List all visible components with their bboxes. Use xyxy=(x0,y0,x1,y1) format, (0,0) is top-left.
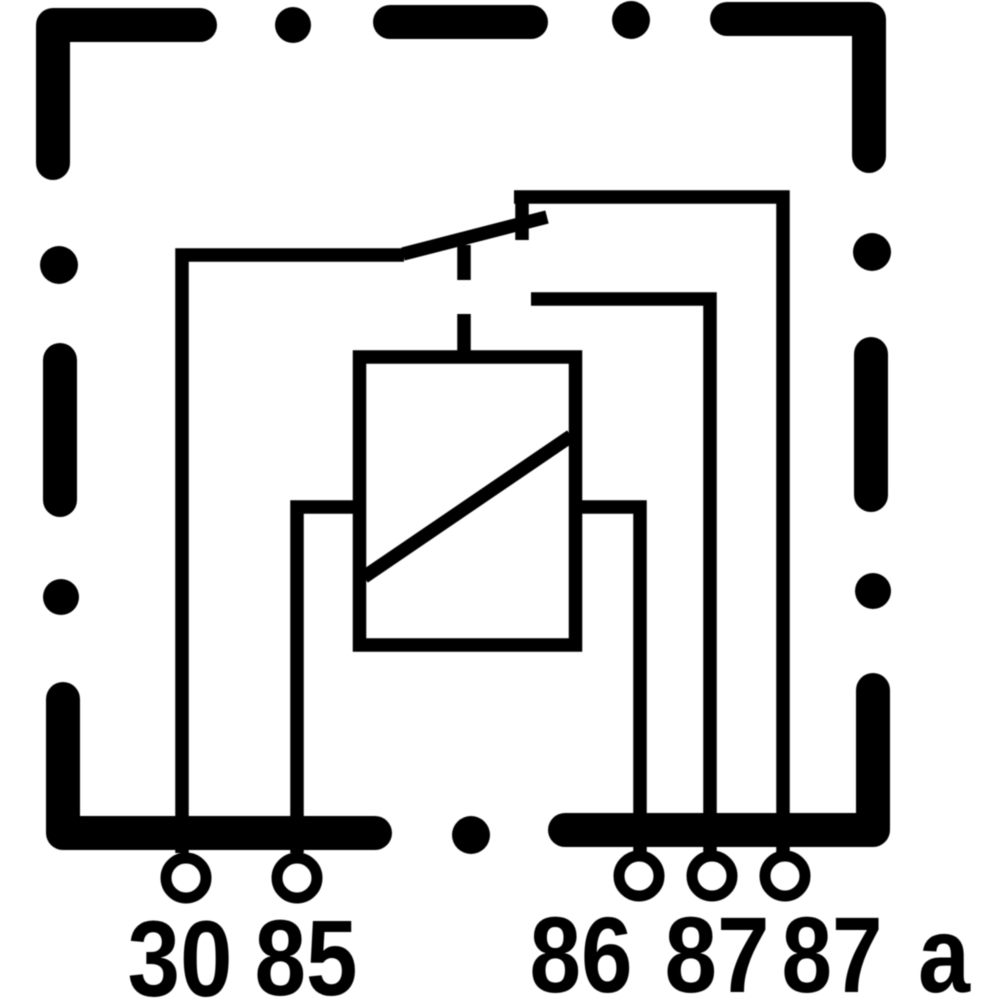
terminal-label-85: 85 xyxy=(255,897,358,1000)
circuit-wiring xyxy=(182,197,783,853)
housing-dot-top-1 xyxy=(275,7,311,43)
wire-terminal-87 xyxy=(531,299,710,853)
housing-dot-bottom xyxy=(452,816,490,854)
housing-corner-top-left xyxy=(53,25,200,163)
terminal-label-87a-number: 87 xyxy=(782,894,883,1000)
housing-dot-left-2 xyxy=(43,579,79,615)
terminal-circle-87 xyxy=(692,856,732,896)
terminal-label-87a-suffix: a xyxy=(918,894,971,1000)
wire-terminal-86 xyxy=(578,507,640,853)
terminal-label-30: 30 xyxy=(128,898,233,1000)
wire-terminal-85 xyxy=(297,507,356,853)
terminal-circle-87a xyxy=(765,856,805,896)
housing-outline-dots xyxy=(40,1,891,854)
housing-dot-left-1 xyxy=(40,246,78,284)
terminal-circle-30 xyxy=(166,858,206,898)
housing-dot-right-1 xyxy=(853,233,891,271)
terminals xyxy=(166,856,805,898)
terminal-labels: 30 85 86 87 87 a xyxy=(128,894,971,1000)
housing-dot-top-2 xyxy=(612,1,650,39)
relay-schematic-page: 30 85 86 87 87 a xyxy=(0,0,1000,1000)
terminal-circle-86 xyxy=(619,856,659,896)
housing-corner-top-right xyxy=(727,19,869,156)
terminal-label-87: 87 xyxy=(665,894,770,1000)
terminal-circle-85 xyxy=(277,858,317,898)
terminal-label-86: 86 xyxy=(530,894,633,1000)
housing-dot-right-2 xyxy=(855,573,891,609)
housing-corner-bottom-right xyxy=(565,690,873,830)
housing-corner-bottom-left xyxy=(63,699,375,833)
coil-diagonal-icon xyxy=(364,436,571,577)
relay-wiring-diagram: 30 85 86 87 87 a xyxy=(0,0,1000,1000)
